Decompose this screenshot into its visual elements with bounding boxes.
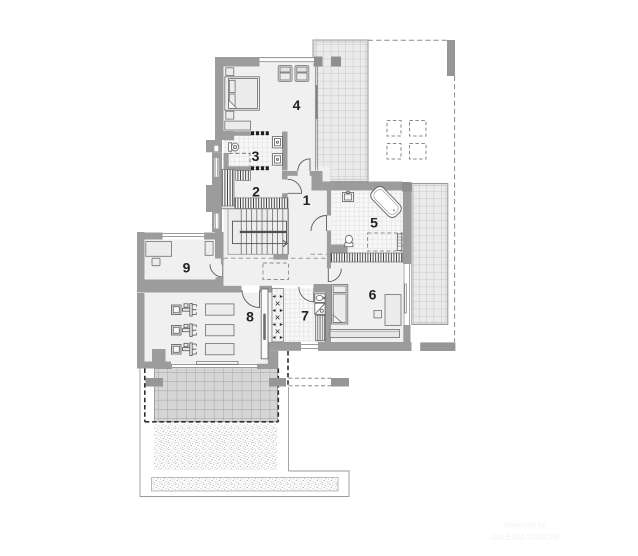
svg-text:2: 2 <box>252 184 260 200</box>
svg-text:3: 3 <box>252 148 260 164</box>
svg-text:6: 6 <box>369 287 377 303</box>
svg-text:Designed by: Designed by <box>504 520 546 529</box>
svg-text:1: 1 <box>303 192 311 208</box>
svg-text:7: 7 <box>301 308 309 324</box>
svg-text:5: 5 <box>370 215 378 231</box>
svg-text:GALERIA DOMOW: GALERIA DOMOW <box>491 533 560 542</box>
svg-text:4: 4 <box>293 97 301 113</box>
svg-text:8: 8 <box>246 309 254 325</box>
svg-text:9: 9 <box>183 260 191 276</box>
